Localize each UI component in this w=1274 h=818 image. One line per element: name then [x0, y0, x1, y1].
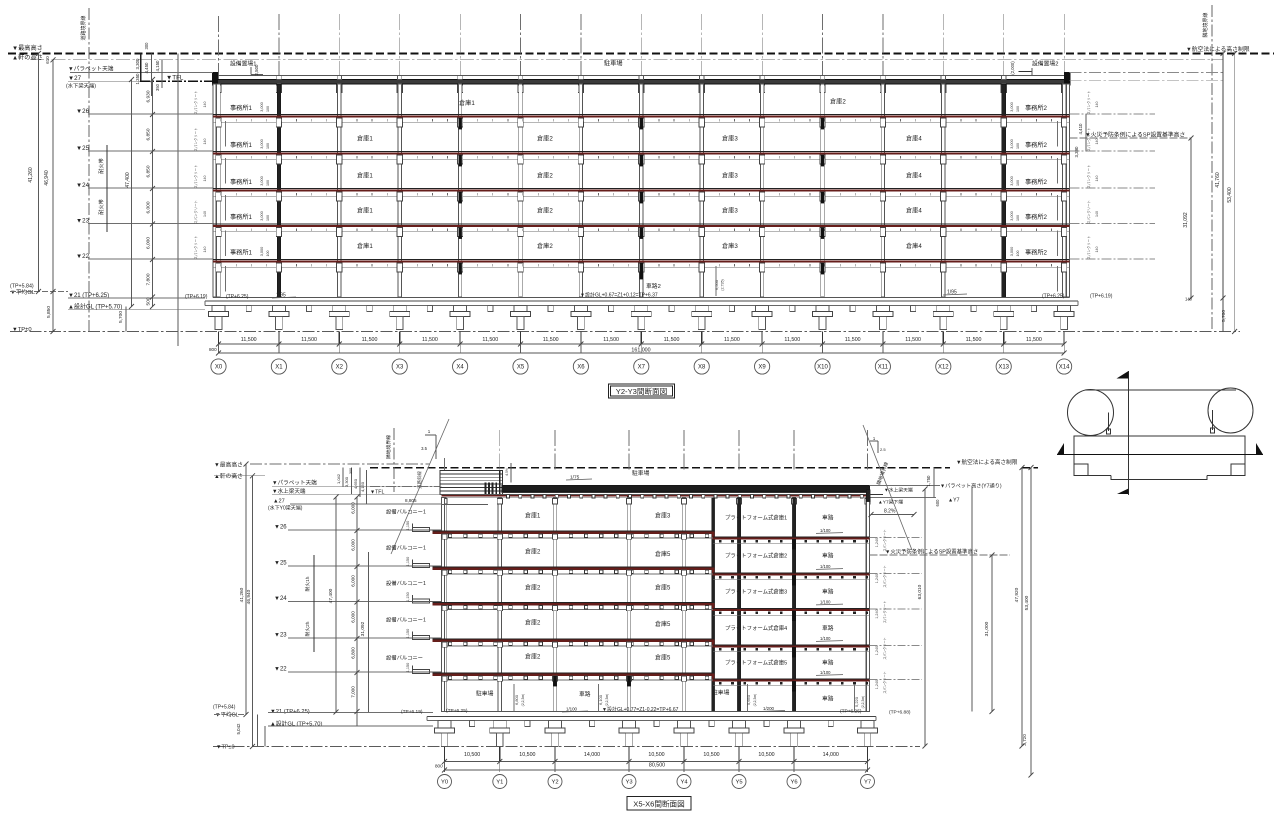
svg-text:車路: 車路 — [822, 659, 834, 667]
svg-text:倉庫1: 倉庫1 — [525, 512, 541, 520]
svg-text:駐車場: 駐車場 — [476, 690, 494, 698]
svg-text:(TP+6.88): (TP+6.88) — [889, 710, 911, 716]
svg-text:10,500: 10,500 — [758, 752, 774, 758]
svg-text:事務所2: 事務所2 — [1025, 249, 1048, 257]
svg-text:100: 100 — [266, 143, 270, 149]
svg-text:▲設計GL (TP+5.70): ▲設計GL (TP+5.70) — [68, 303, 122, 311]
svg-text:11,500: 11,500 — [905, 337, 921, 343]
svg-text:4,450: 4,450 — [144, 62, 149, 74]
svg-text:6,000: 6,000 — [351, 575, 356, 587]
svg-text:倉庫2: 倉庫2 — [537, 242, 553, 250]
svg-text:41,260: 41,260 — [28, 167, 34, 183]
svg-text:Y6: Y6 — [790, 780, 797, 786]
svg-text:11,500: 11,500 — [966, 337, 982, 343]
svg-text:14,000: 14,000 — [823, 752, 839, 758]
svg-text:53,400: 53,400 — [1024, 595, 1030, 610]
svg-text:▲Y7: ▲Y7 — [948, 498, 960, 504]
svg-text:スパンクリート: スパンクリート — [1086, 236, 1091, 260]
svg-text:1/100: 1/100 — [820, 600, 831, 605]
svg-text:車路: 車路 — [822, 552, 834, 560]
svg-text:倉庫5: 倉庫5 — [655, 654, 671, 662]
svg-text:11,500: 11,500 — [241, 337, 257, 343]
svg-text:Y4: Y4 — [680, 780, 688, 786]
svg-text:スパンクリート: スパンクリート — [193, 91, 198, 115]
svg-text:道路斜線: 道路斜線 — [416, 471, 423, 489]
svg-text:4,410: 4,410 — [1078, 123, 1083, 135]
svg-text:▼21 (TP+6.25): ▼21 (TP+6.25) — [270, 709, 310, 715]
svg-text:▼TFL: ▼TFL — [166, 74, 184, 81]
svg-text:1/100: 1/100 — [820, 564, 831, 569]
svg-text:1,240: 1,240 — [875, 609, 879, 619]
svg-text:41,260: 41,260 — [239, 587, 245, 602]
svg-text:倉庫2: 倉庫2 — [537, 207, 553, 215]
svg-text:350: 350 — [155, 83, 160, 91]
svg-text:倉庫4: 倉庫4 — [906, 172, 922, 180]
svg-text:Y0: Y0 — [441, 780, 448, 786]
svg-text:倉庫4: 倉庫4 — [906, 207, 922, 215]
svg-text:Y5: Y5 — [735, 780, 742, 786]
svg-text:100: 100 — [1016, 180, 1020, 186]
svg-text:11,500: 11,500 — [422, 337, 438, 343]
svg-text:事務所1: 事務所1 — [230, 213, 253, 221]
svg-text:道路境界線: 道路境界線 — [80, 15, 87, 40]
svg-text:スパンクリート: スパンクリート — [882, 529, 887, 551]
svg-text:610: 610 — [45, 56, 50, 64]
svg-text:1,042: 1,042 — [336, 473, 341, 484]
svg-text:スパンクリート: スパンクリート — [882, 601, 887, 623]
svg-text:6,000: 6,000 — [146, 237, 152, 249]
svg-text:Y1: Y1 — [496, 780, 503, 786]
svg-text:140: 140 — [203, 211, 207, 217]
svg-text:31,000: 31,000 — [984, 621, 990, 636]
svg-text:3,300: 3,300 — [344, 476, 349, 487]
svg-text:3,000: 3,000 — [260, 211, 264, 221]
svg-text:(2,2,3m): (2,2,3m) — [753, 694, 757, 707]
svg-text:▼平均GL: ▼平均GL — [10, 288, 36, 296]
svg-text:8.2%: 8.2% — [884, 509, 896, 515]
svg-text:X14: X14 — [1059, 365, 1070, 371]
svg-text:▼26: ▼26 — [274, 525, 287, 531]
svg-text:(TP+5.84): (TP+5.84) — [213, 705, 236, 711]
svg-text:▼24: ▼24 — [274, 596, 287, 602]
svg-text:隣地境界線: 隣地境界線 — [1202, 12, 1209, 37]
svg-text:X11: X11 — [878, 365, 889, 371]
svg-text:スパンクリート: スパンクリート — [193, 165, 198, 189]
svg-text:▼パラペット天端: ▼パラペット天端 — [68, 65, 114, 73]
svg-text:47,400: 47,400 — [125, 172, 131, 188]
svg-text:スパンクリート: スパンクリート — [1086, 165, 1091, 189]
svg-text:1,150: 1,150 — [406, 557, 410, 567]
svg-text:1,350: 1,350 — [135, 73, 140, 85]
svg-text:Y2: Y2 — [551, 780, 558, 786]
svg-text:スパンクリート: スパンクリート — [1086, 91, 1091, 115]
svg-text:6,100: 6,100 — [598, 694, 603, 705]
svg-text:140: 140 — [203, 176, 207, 182]
svg-text:倉庫3: 倉庫3 — [722, 207, 738, 215]
svg-text:耐火2h: 耐火2h — [304, 621, 311, 636]
svg-text:100: 100 — [1016, 251, 1020, 257]
svg-text:4,150: 4,150 — [360, 481, 365, 492]
svg-text:31,092: 31,092 — [1183, 212, 1189, 228]
svg-text:▼設計GL+0.67=Z1+0.12=TP+6.37: ▼設計GL+0.67=Z1+0.12=TP+6.37 — [580, 292, 658, 299]
svg-text:▼航空法による高さ制限: ▼航空法による高さ制限 — [956, 458, 1018, 466]
svg-text:10,500: 10,500 — [648, 752, 664, 758]
svg-text:▼水上梁天端: ▼水上梁天端 — [272, 487, 306, 495]
svg-text:6,000: 6,000 — [351, 539, 356, 551]
svg-text:倉庫3: 倉庫3 — [655, 512, 671, 520]
svg-text:3,000: 3,000 — [260, 139, 264, 149]
svg-text:11,500: 11,500 — [845, 337, 861, 343]
svg-text:6,000: 6,000 — [351, 502, 356, 514]
svg-text:設備バルコニー1: 設備バルコニー1 — [386, 616, 426, 624]
svg-text:倉庫5: 倉庫5 — [655, 550, 671, 558]
svg-text:(TP+6.19): (TP+6.19) — [401, 709, 423, 715]
svg-text:6,000: 6,000 — [146, 201, 152, 213]
svg-text:100: 100 — [266, 180, 270, 186]
svg-text:車路: 車路 — [822, 695, 834, 703]
svg-text:11,500: 11,500 — [664, 337, 680, 343]
svg-text:X7: X7 — [638, 365, 646, 371]
svg-text:2,500: 2,500 — [254, 64, 259, 76]
svg-text:4,650: 4,650 — [353, 478, 358, 489]
svg-text:41,760: 41,760 — [1215, 172, 1221, 188]
svg-text:▼25: ▼25 — [76, 145, 90, 152]
svg-text:耐火帯: 耐火帯 — [97, 158, 105, 174]
svg-text:スパンクリート: スパンクリート — [1086, 128, 1091, 152]
svg-text:(TP+6.25): (TP+6.25) — [446, 708, 468, 714]
svg-text:140: 140 — [203, 139, 207, 145]
svg-text:倉庫2: 倉庫2 — [525, 548, 541, 556]
svg-text:500: 500 — [146, 297, 152, 305]
svg-text:3,000: 3,000 — [260, 247, 264, 257]
svg-text:X6: X6 — [577, 365, 585, 371]
svg-text:3,720: 3,720 — [1022, 734, 1027, 746]
svg-text:▲27: ▲27 — [273, 499, 285, 505]
svg-text:14,000: 14,000 — [584, 752, 600, 758]
svg-text:事務所2: 事務所2 — [1025, 104, 1048, 112]
svg-text:1,240: 1,240 — [875, 680, 879, 690]
svg-text:80,500: 80,500 — [649, 763, 665, 769]
svg-text:Y7: Y7 — [864, 780, 871, 786]
svg-text:倉庫3: 倉庫3 — [722, 172, 738, 180]
svg-text:3,000: 3,000 — [1010, 139, 1014, 149]
svg-text:11,500: 11,500 — [543, 337, 559, 343]
svg-text:1,150: 1,150 — [406, 521, 410, 531]
svg-text:(TP+6.19): (TP+6.19) — [1090, 294, 1113, 300]
svg-text:▼火災予防条例によるSP設置基準高さ: ▼火災予防条例によるSP設置基準高さ — [885, 548, 978, 556]
svg-text:倉庫3: 倉庫3 — [722, 135, 738, 143]
svg-text:スパンクリート: スパンクリート — [193, 200, 198, 224]
svg-text:6,800: 6,800 — [514, 694, 519, 705]
svg-text:4,150: 4,150 — [155, 60, 160, 72]
svg-text:47,400: 47,400 — [328, 588, 334, 603]
svg-text:事務所1: 事務所1 — [230, 104, 253, 112]
svg-text:140: 140 — [1095, 211, 1099, 217]
svg-text:倉庫3: 倉庫3 — [722, 242, 738, 250]
svg-text:倉庫2: 倉庫2 — [525, 584, 541, 592]
svg-text:車路: 車路 — [822, 514, 834, 522]
svg-text:X12: X12 — [938, 365, 949, 371]
svg-text:11,500: 11,500 — [1026, 337, 1042, 343]
svg-text:100: 100 — [1016, 215, 1020, 221]
svg-text:プラットフォーム式倉庫4: プラットフォーム式倉庫4 — [725, 624, 787, 632]
svg-text:車路: 車路 — [822, 624, 834, 632]
svg-text:▼航空法による高さ制限: ▼航空法による高さ制限 — [1186, 45, 1250, 53]
svg-text:設備バルコニー1: 設備バルコニー1 — [386, 508, 426, 516]
svg-text:100: 100 — [266, 106, 270, 112]
svg-text:倉庫1: 倉庫1 — [357, 207, 373, 215]
svg-text:5,850: 5,850 — [46, 306, 52, 318]
svg-text:1,240: 1,240 — [875, 538, 879, 548]
svg-text:駐車場: 駐車場 — [604, 60, 623, 68]
svg-text:X9: X9 — [758, 365, 766, 371]
svg-text:46,940: 46,940 — [44, 170, 50, 186]
svg-text:▼25: ▼25 — [274, 561, 287, 567]
svg-text:1/100: 1/100 — [820, 636, 831, 641]
svg-text:3,000: 3,000 — [1010, 176, 1014, 186]
svg-text:800: 800 — [435, 764, 443, 769]
svg-text:1,750: 1,750 — [926, 475, 931, 487]
svg-text:11,500: 11,500 — [301, 337, 317, 343]
svg-text:スパンクリート: スパンクリート — [193, 128, 198, 152]
svg-text:3,000: 3,000 — [1010, 247, 1014, 257]
svg-text:600: 600 — [935, 499, 940, 507]
svg-text:X13: X13 — [998, 365, 1009, 371]
svg-text:▼22: ▼22 — [274, 667, 287, 673]
svg-text:X4: X4 — [456, 365, 464, 371]
svg-text:▼パラペット天端: ▼パラペット天端 — [272, 479, 317, 487]
svg-text:倉庫2: 倉庫2 — [830, 98, 846, 106]
svg-text:プラットフォーム式倉庫5: プラットフォーム式倉庫5 — [725, 659, 787, 667]
svg-text:3,390: 3,390 — [1074, 146, 1079, 158]
svg-text:事務所1: 事務所1 — [230, 141, 253, 149]
svg-text:車路2: 車路2 — [646, 282, 661, 290]
svg-text:X5: X5 — [517, 365, 525, 371]
svg-text:100: 100 — [266, 215, 270, 221]
svg-text:倉庫4: 倉庫4 — [906, 135, 922, 143]
svg-text:X3: X3 — [396, 365, 404, 371]
svg-text:▼23: ▼23 — [274, 633, 287, 639]
svg-text:設備バルコニー1: 設備バルコニー1 — [386, 579, 426, 587]
svg-text:63,010: 63,010 — [917, 584, 923, 599]
svg-text:倉庫4: 倉庫4 — [906, 242, 922, 250]
svg-text:1,240: 1,240 — [875, 646, 879, 656]
svg-text:▼22: ▼22 — [76, 253, 90, 260]
svg-text:140: 140 — [1095, 176, 1099, 182]
svg-text:(TP+6.25): (TP+6.25) — [840, 709, 862, 715]
svg-text:1,150: 1,150 — [406, 592, 410, 602]
svg-text:140: 140 — [1095, 139, 1099, 145]
svg-text:▼火災予防条例によるSP設置基準高さ: ▼火災予防条例によるSP設置基準高さ — [1085, 131, 1185, 139]
svg-text:5,042: 5,042 — [236, 723, 241, 735]
svg-text:▼最高高さ: ▼最高高さ — [12, 44, 43, 52]
svg-text:▼23: ▼23 — [76, 218, 90, 225]
svg-text:10,500: 10,500 — [464, 752, 480, 758]
svg-text:X2: X2 — [336, 365, 344, 371]
svg-text:X10: X10 — [817, 365, 828, 371]
svg-text:X5-X6間断面図: X5-X6間断面図 — [633, 799, 684, 809]
svg-text:1/200: 1/200 — [763, 706, 775, 711]
svg-text:3,000: 3,000 — [260, 102, 264, 112]
svg-text:(TP+5.84): (TP+5.84) — [10, 284, 34, 290]
svg-text:▼24: ▼24 — [76, 182, 90, 189]
svg-text:1,150: 1,150 — [406, 629, 410, 639]
svg-text:11,500: 11,500 — [482, 337, 498, 343]
svg-text:(2,735): (2,735) — [721, 279, 725, 290]
svg-text:6,000: 6,000 — [351, 611, 356, 623]
svg-text:2.5: 2.5 — [880, 447, 886, 452]
svg-text:設備バルコニー1: 設備バルコニー1 — [386, 544, 426, 552]
svg-text:11,500: 11,500 — [603, 337, 619, 343]
svg-text:800: 800 — [209, 347, 217, 352]
svg-text:倉庫2: 倉庫2 — [537, 172, 553, 180]
svg-text:スパンクリート: スパンクリート — [882, 637, 887, 659]
svg-text:倉庫5: 倉庫5 — [655, 620, 671, 628]
svg-text:倉庫2: 倉庫2 — [525, 619, 541, 627]
svg-text:倉庫1: 倉庫1 — [459, 99, 475, 107]
svg-text:161,000: 161,000 — [631, 348, 650, 354]
svg-text:(2,2,3m): (2,2,3m) — [521, 694, 525, 707]
svg-text:3,000: 3,000 — [260, 176, 264, 186]
svg-text:駐車場: 駐車場 — [712, 689, 730, 697]
svg-text:設備バルコニー: 設備バルコニー — [386, 654, 423, 662]
svg-text:設備置場2: 設備置場2 — [1032, 60, 1058, 68]
svg-text:事務所1: 事務所1 — [230, 249, 253, 257]
svg-text:6,500: 6,500 — [714, 279, 719, 290]
svg-text:140: 140 — [1095, 247, 1099, 253]
svg-text:倉庫1: 倉庫1 — [357, 135, 373, 143]
svg-text:6,800: 6,800 — [351, 647, 356, 659]
svg-text:6,850: 6,850 — [146, 165, 152, 177]
svg-text:▲Y7梁下端: ▲Y7梁下端 — [878, 499, 903, 506]
svg-text:3.5: 3.5 — [421, 446, 427, 451]
svg-text:▼TP±0: ▼TP±0 — [216, 745, 235, 751]
svg-text:(2,000): (2,000) — [1010, 61, 1015, 75]
svg-text:倉庫2: 倉庫2 — [537, 135, 553, 143]
svg-text:▼設計GL+0.77=Z1-0.22=TP+6.67: ▼設計GL+0.77=Z1-0.22=TP+6.67 — [602, 706, 679, 713]
svg-text:事務所2: 事務所2 — [1025, 178, 1048, 186]
svg-text:5,700: 5,700 — [1221, 310, 1227, 322]
svg-text:7,800: 7,800 — [146, 273, 152, 285]
svg-text:140: 140 — [1095, 102, 1099, 108]
svg-text:140: 140 — [1185, 297, 1193, 302]
svg-text:3,000: 3,000 — [1010, 211, 1014, 221]
svg-text:スパンクリート: スパンクリート — [1086, 200, 1091, 224]
svg-text:100: 100 — [1016, 106, 1020, 112]
svg-text:3,000: 3,000 — [1010, 102, 1014, 112]
svg-text:耐火1h: 耐火1h — [304, 576, 311, 591]
svg-text:100: 100 — [1016, 143, 1020, 149]
svg-text:7,000: 7,000 — [351, 686, 356, 698]
svg-text:車路: 車路 — [822, 588, 834, 596]
svg-text:Y3: Y3 — [625, 780, 632, 786]
svg-text:1,150: 1,150 — [406, 663, 410, 673]
svg-text:5,650: 5,650 — [746, 694, 751, 705]
svg-text:倉庫1: 倉庫1 — [357, 172, 373, 180]
svg-text:▼パラペット高さ(Y7通り): ▼パラペット高さ(Y7通り) — [940, 482, 1002, 490]
svg-text:(2,2,3m): (2,2,3m) — [605, 694, 609, 707]
svg-text:11,500: 11,500 — [784, 337, 800, 343]
svg-text:(TP+6.25): (TP+6.25) — [226, 294, 249, 300]
svg-text:1/100: 1/100 — [820, 528, 831, 533]
svg-text:(水下梁天端): (水下梁天端) — [66, 82, 96, 90]
svg-text:1/100: 1/100 — [566, 707, 578, 712]
svg-text:46,940: 46,940 — [246, 589, 252, 604]
svg-text:5,220: 5,220 — [854, 696, 859, 707]
svg-text:(TP+6.19): (TP+6.19) — [185, 294, 208, 300]
svg-text:5,700: 5,700 — [118, 311, 124, 323]
svg-text:Y2-Y3間断面図: Y2-Y3間断面図 — [616, 386, 667, 396]
svg-text:車路: 車路 — [579, 690, 591, 698]
svg-text:倉庫1: 倉庫1 — [357, 242, 373, 250]
svg-text:10,500: 10,500 — [703, 752, 719, 758]
svg-text:47,920: 47,920 — [1014, 587, 1020, 602]
svg-text:300: 300 — [349, 468, 353, 474]
svg-text:プラットフォーム式倉庫3: プラットフォーム式倉庫3 — [725, 588, 787, 596]
svg-text:11,500: 11,500 — [724, 337, 740, 343]
svg-text:3,300: 3,300 — [135, 58, 140, 70]
svg-text:100: 100 — [266, 251, 270, 257]
svg-text:事務所1: 事務所1 — [230, 178, 253, 186]
svg-text:(TP+6.25): (TP+6.25) — [1042, 294, 1065, 300]
svg-text:倉庫5: 倉庫5 — [655, 584, 671, 592]
svg-text:140: 140 — [203, 247, 207, 253]
svg-text:▼水上梁天端: ▼水上梁天端 — [884, 487, 913, 494]
svg-text:300: 300 — [144, 42, 149, 50]
svg-text:X1: X1 — [275, 365, 283, 371]
svg-text:1/100: 1/100 — [820, 670, 831, 675]
svg-text:6,850: 6,850 — [146, 128, 152, 140]
svg-text:(水下Y0梁天端): (水下Y0梁天端) — [268, 505, 303, 512]
svg-text:140: 140 — [203, 102, 207, 108]
svg-text:11,500: 11,500 — [362, 337, 378, 343]
svg-text:4.5%: 4.5% — [505, 468, 509, 476]
svg-text:X0: X0 — [215, 365, 223, 371]
svg-text:31,092: 31,092 — [360, 621, 366, 636]
svg-text:プラットフォーム式倉庫1: プラットフォーム式倉庫1 — [725, 514, 787, 522]
svg-text:スパンクリート: スパンクリート — [882, 671, 887, 693]
svg-text:▼26: ▼26 — [76, 108, 90, 115]
svg-text:駐車場: 駐車場 — [632, 469, 650, 477]
svg-text:倉庫2: 倉庫2 — [525, 653, 541, 661]
svg-text:53,400: 53,400 — [1227, 187, 1233, 203]
svg-text:事務所2: 事務所2 — [1025, 213, 1048, 221]
svg-text:事務所2: 事務所2 — [1025, 141, 1048, 149]
svg-text:1,240: 1,240 — [875, 574, 879, 584]
svg-text:10,500: 10,500 — [519, 752, 535, 758]
svg-text:スパンクリート: スパンクリート — [882, 565, 887, 587]
svg-text:耐火帯: 耐火帯 — [97, 199, 105, 215]
svg-text:(2,2,3m): (2,2,3m) — [861, 696, 865, 709]
svg-text:▼TP±0: ▼TP±0 — [12, 327, 32, 333]
svg-text:隣地境界線: 隣地境界線 — [385, 435, 392, 459]
svg-text:8,805: 8,805 — [405, 498, 417, 503]
svg-text:プラットフォーム式倉庫2: プラットフォーム式倉庫2 — [725, 552, 787, 560]
svg-text:▼最高高さ: ▼最高高さ — [214, 461, 243, 469]
svg-text:設備置場1: 設備置場1 — [230, 60, 256, 68]
svg-text:X8: X8 — [698, 365, 706, 371]
svg-text:6,930: 6,930 — [146, 90, 152, 102]
svg-text:スパンクリート: スパンクリート — [193, 236, 198, 260]
